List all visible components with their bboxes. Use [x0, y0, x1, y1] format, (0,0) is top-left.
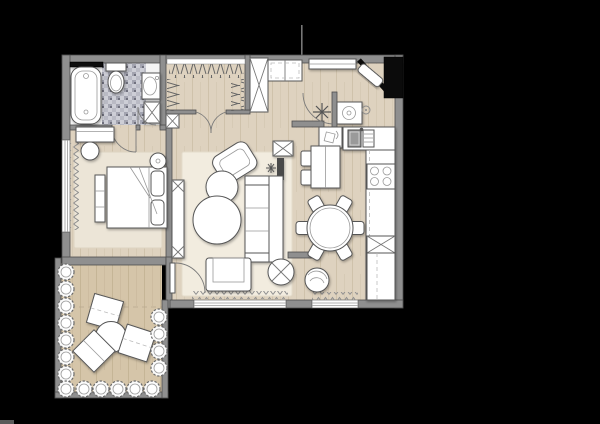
desk	[76, 127, 114, 142]
sofa-seat	[245, 185, 269, 253]
living-window	[194, 300, 286, 308]
hanging-rail-right	[231, 79, 244, 111]
wall-bedroom-bottom	[62, 257, 170, 265]
utility-cabinet	[319, 127, 342, 148]
wall-closet-right	[245, 55, 250, 110]
sofa-armrest-top	[245, 176, 269, 185]
wall-bedroom-top-c	[160, 125, 166, 130]
wall-bottom-b	[286, 300, 312, 308]
wall-left-upper	[62, 55, 70, 140]
floor-plan-canvas	[0, 0, 600, 424]
entry-black-panel	[384, 57, 403, 98]
front-armchair	[206, 258, 251, 291]
bedroom-window	[62, 140, 70, 232]
sofa	[245, 176, 283, 262]
side-chair-1	[301, 151, 312, 166]
x-side-table	[268, 259, 294, 285]
bedroom-curtain	[70, 142, 79, 230]
tub-chair	[305, 268, 329, 292]
tv-unit	[172, 180, 184, 258]
stool	[81, 142, 99, 160]
bathroom-mosaic-floor	[102, 63, 146, 125]
wall-bath-closet	[160, 55, 166, 128]
closet-shelf	[167, 59, 245, 64]
round-dining-table	[307, 205, 353, 251]
floor-plan-viewport	[0, 0, 600, 424]
wall-bottom-c	[358, 300, 403, 308]
wall-bottom-a	[170, 300, 194, 308]
living-curtain	[192, 291, 288, 299]
side-chair-2	[301, 170, 312, 185]
scale-bar-fragment	[0, 420, 14, 424]
section-marker-line	[301, 25, 303, 57]
base-cabinets	[367, 253, 395, 300]
dining-window	[312, 300, 358, 308]
coffee-table-large	[193, 196, 241, 244]
bath-black-header	[70, 62, 103, 67]
pillow-1	[151, 171, 164, 196]
toilet-tank	[106, 63, 126, 71]
table-lamp	[150, 153, 166, 169]
dining-curtain	[312, 292, 358, 300]
balcony-door-leaf	[170, 263, 175, 293]
drainer	[363, 130, 374, 147]
bench	[95, 175, 105, 222]
kitchen-faucet	[360, 128, 364, 132]
wall-kitchen-top	[292, 121, 324, 127]
cooktop	[367, 164, 395, 189]
sofa-backrest	[269, 176, 283, 262]
washing-machine	[337, 102, 362, 124]
hanging-rail-top	[169, 64, 244, 78]
wall-bedroom-top-b	[136, 125, 140, 130]
hanging-rail-left	[167, 79, 180, 111]
